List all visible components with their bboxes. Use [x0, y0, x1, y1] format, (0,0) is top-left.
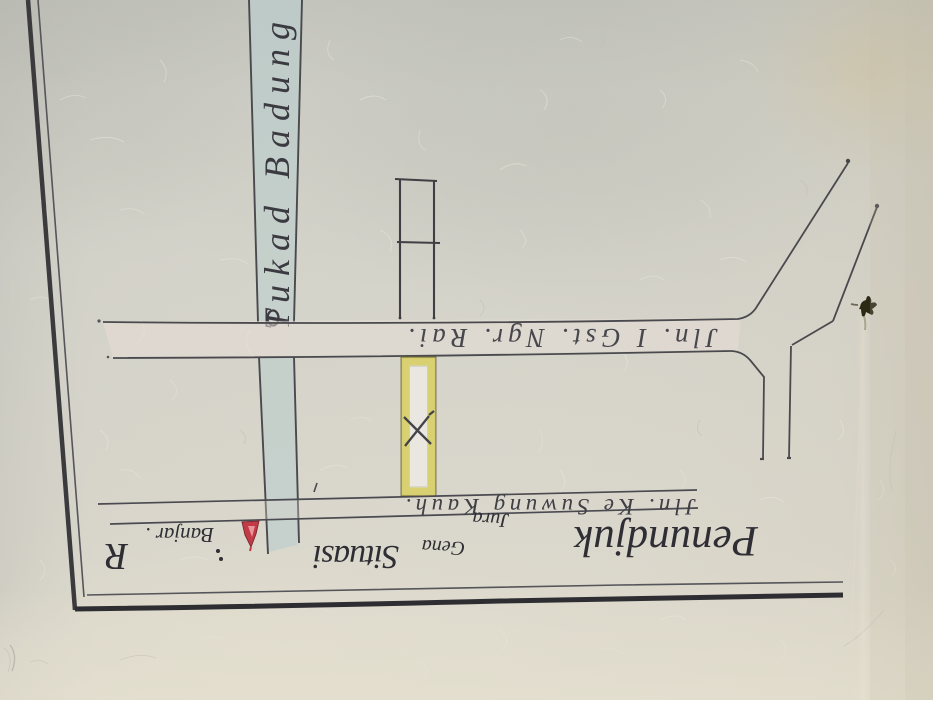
svg-text:Situasi: Situasi [313, 538, 399, 575]
svg-text:Jln. I Gst. Ngr. Rai.: Jln. I Gst. Ngr. Rai. [403, 323, 718, 353]
svg-text:Jln. Ke Suwung Kauh.: Jln. Ke Suwung Kauh. [401, 494, 696, 519]
svg-text:Jura: Jura [472, 507, 510, 531]
svg-text:Banjar .: Banjar . [145, 523, 214, 547]
svg-text:Tukad Badung: Tukad Badung [257, 13, 297, 330]
svg-text:Gena: Gena [421, 535, 465, 559]
svg-text:R: R [105, 535, 129, 577]
svg-text:Penundjuk: Penundjuk [573, 517, 759, 564]
